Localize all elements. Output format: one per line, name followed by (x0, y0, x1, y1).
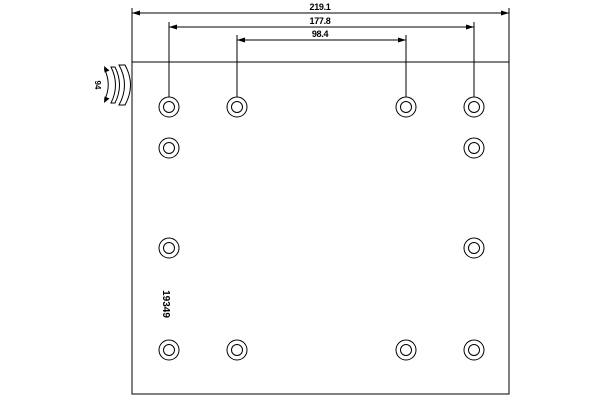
rivet-hole-outer (396, 340, 416, 360)
rivet-hole-inner (469, 143, 480, 154)
rivet-hole-outer (464, 340, 484, 360)
rivet-hole-outer (464, 97, 484, 117)
arrowhead-left-icon (132, 11, 140, 16)
dimension-overall-width-label: 219.1 (309, 2, 330, 12)
rivet-hole-inner (164, 102, 175, 113)
dimension-overall-width: 219.1 (132, 2, 509, 16)
curvature-symbol: 94 (93, 65, 131, 105)
curvature-arrow-icon (104, 66, 110, 103)
rivet-hole-outer (227, 97, 247, 117)
arrowhead-left-icon (169, 25, 177, 30)
curvature-label: 94 (93, 81, 102, 90)
rivet-hole-outer (159, 340, 179, 360)
technical-drawing: 219.1 177.8 98.4 19349 94 (0, 0, 600, 400)
rivet-hole-inner (469, 243, 480, 254)
rivet-hole-inner (164, 143, 175, 154)
lining-plate-outline (132, 62, 509, 394)
dimension-outer-hole-spacing: 177.8 (169, 16, 474, 30)
rivet-hole-outer (159, 138, 179, 158)
rivet-hole-inner (164, 243, 175, 254)
rivet-hole-outer (464, 238, 484, 258)
rivet-hole-outer (396, 97, 416, 117)
dimension-outer-hole-spacing-label: 177.8 (309, 16, 330, 26)
rivet-hole-inner (401, 345, 412, 356)
dimension-inner-hole-spacing-label: 98.4 (312, 29, 329, 39)
rivet-hole-outer (227, 340, 247, 360)
rivet-holes (159, 97, 484, 360)
arrowhead-left-icon (237, 38, 245, 43)
rivet-hole-inner (164, 345, 175, 356)
lining-profile-icon (111, 65, 131, 105)
part-number-label: 19349 (160, 290, 171, 318)
rivet-hole-inner (469, 102, 480, 113)
arrowhead-right-icon (501, 11, 509, 16)
drawing-canvas: 219.1 177.8 98.4 19349 94 (0, 0, 600, 400)
rivet-hole-inner (232, 345, 243, 356)
rivet-hole-inner (469, 345, 480, 356)
rivet-hole-outer (159, 97, 179, 117)
arrowhead-right-icon (398, 38, 406, 43)
rivet-hole-inner (401, 102, 412, 113)
rivet-hole-inner (232, 102, 243, 113)
arrowhead-right-icon (466, 25, 474, 30)
dimension-inner-hole-spacing: 98.4 (237, 29, 406, 43)
rivet-hole-outer (464, 138, 484, 158)
rivet-hole-outer (159, 238, 179, 258)
